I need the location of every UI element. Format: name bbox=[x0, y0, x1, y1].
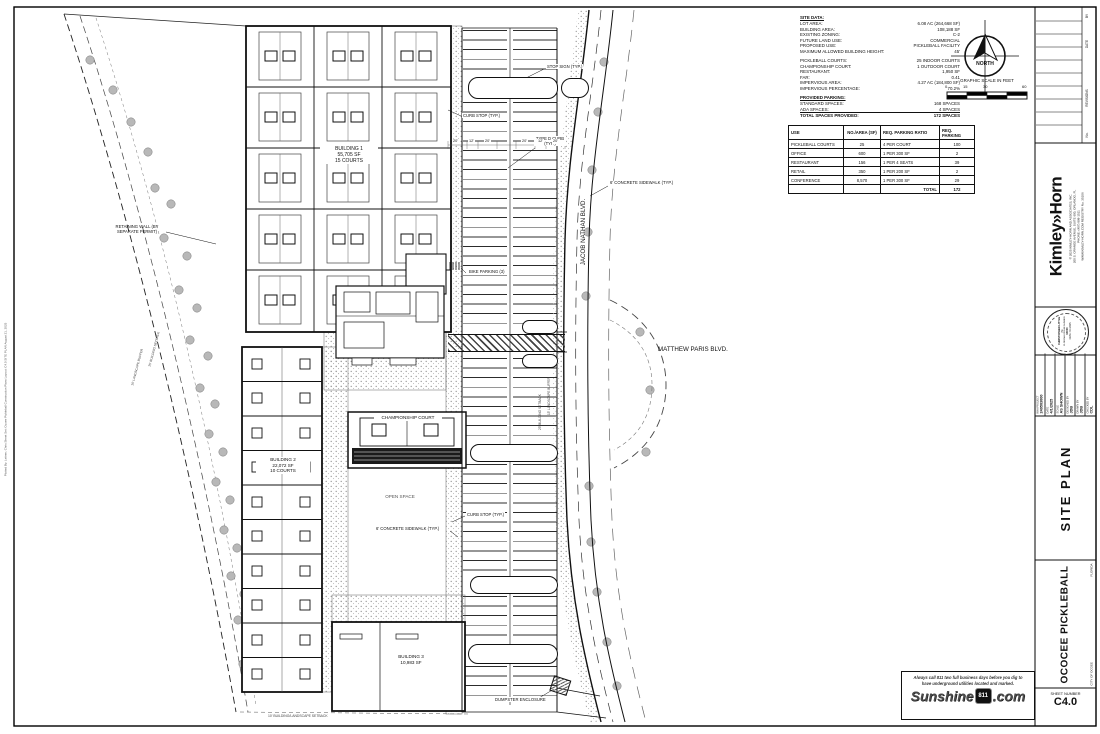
site-data-row: TOTAL SPACES PROVIDED:172 SPACES bbox=[800, 112, 960, 119]
retaining-wall-label: RETAINING WALL (BY SEPARATE PERMIT) bbox=[108, 224, 166, 234]
table-total-row: TOTAL172 bbox=[789, 184, 974, 193]
table-row: RETAIL350 1 PER 200 SF2 bbox=[789, 166, 974, 175]
building-setback-25-east-label: 25' BUILDING SETBACK bbox=[539, 382, 547, 442]
parking-stalls-east bbox=[513, 30, 557, 76]
parking-stalls-west bbox=[463, 596, 507, 642]
landscape-island bbox=[470, 444, 558, 462]
project-info-field: SCALEAS SHOWN bbox=[1056, 354, 1066, 416]
site-data-block: SITE DATA: LOT AREA:6.08 AC (264,668 SF)… bbox=[800, 15, 960, 119]
project-info-field: KHA PROJECT249503000 bbox=[1036, 354, 1046, 416]
bleachers bbox=[352, 448, 462, 464]
building-1-outline bbox=[246, 26, 451, 332]
pe-seal-text: CHRISTOPHER LITTLE PE FLORIDA LICENSE NU… bbox=[1043, 309, 1087, 353]
parking-dim: 20' bbox=[552, 139, 559, 144]
jacob-nathan-blvd-road bbox=[558, 10, 646, 722]
landscape-island bbox=[522, 320, 558, 334]
scale-tick: 60 bbox=[1022, 85, 1026, 90]
project-info-field: DATE4/1/2025 bbox=[1046, 354, 1056, 416]
championship-court-label: CHAMPIONSHIP COURT bbox=[374, 415, 442, 421]
building-1-label: BUILDING 1 55,705 SF 15 COURTS bbox=[320, 146, 378, 164]
sunshine-notice-line: have underground utilities located and m… bbox=[902, 681, 1034, 687]
north-label: NORTH bbox=[969, 61, 1001, 67]
kimley-horn-block: Kimley»Horn © 2025 KIMLEY-HORN AND ASSOC… bbox=[1036, 146, 1095, 308]
sheet-number-box: SHEET NUMBER C4.0 bbox=[1036, 689, 1095, 726]
parking-dim: 20' bbox=[521, 139, 528, 144]
parking-dim: 12' bbox=[468, 139, 475, 144]
parking-requirements-table: USE NO./AREA (SF) REQ. PARKING RATIO REQ… bbox=[788, 125, 975, 194]
bike-parking-label: BIKE PARKING (3) bbox=[468, 269, 506, 274]
crosswalk bbox=[448, 334, 565, 352]
driveway-lines bbox=[557, 332, 606, 718]
parking-stalls-east bbox=[513, 666, 557, 698]
building-2-courts bbox=[252, 359, 310, 679]
parking-stalls-west bbox=[463, 102, 507, 328]
graphic-scale-title: GRAPHIC SCALE IN FEET bbox=[947, 78, 1027, 83]
landscape-island bbox=[561, 78, 589, 98]
table-row: CONFERENCE8,570 1 PER 300 SF29 bbox=[789, 175, 974, 184]
project-name: OCOCEE PICKLEBALL bbox=[1060, 566, 1071, 684]
parking-stalls-west bbox=[463, 666, 507, 698]
curb-stop-mid-label: CURB STOP (TYP.) bbox=[466, 512, 505, 517]
revisions-no-header: No. bbox=[1085, 115, 1093, 155]
city-label: CITY OF OCOEE bbox=[1090, 662, 1094, 685]
sheet-title: SITE PLAN bbox=[1036, 417, 1095, 560]
parking-stalls-west bbox=[463, 358, 507, 442]
table-row: PICKLEBALL COURTS25 4 PER COURT100 bbox=[789, 139, 974, 148]
revisions-header: REVISIONS bbox=[1085, 78, 1093, 118]
parking-dim: 20' bbox=[452, 139, 459, 144]
bike-rack-symbol bbox=[450, 262, 459, 270]
project-name-block: OCOCEE PICKLEBALL CITY OF OCOEE FLORIDA bbox=[1036, 562, 1095, 688]
landscape-island bbox=[468, 644, 558, 664]
building-3-label: BUILDING 3 10,983 SF bbox=[384, 654, 438, 665]
jacob-nathan-blvd-label: JACOB NATHAN BLVD. bbox=[580, 192, 590, 272]
concrete-sidewalk-mid-label: 6' CONCRETE SIDEWALK (TYP.) bbox=[376, 526, 439, 531]
seal-date: DATE: 4/1/2025 bbox=[1069, 323, 1072, 340]
landscape-island bbox=[470, 576, 558, 594]
sheet-number: C4.0 bbox=[1036, 696, 1095, 708]
building-2-label: BUILDING 2 22,072 SF 10 COURTS bbox=[256, 457, 310, 474]
setback-bottom-label: 10' BUILDING/LANDSCAPE SETBACK bbox=[268, 714, 328, 718]
parking-stalls-east bbox=[513, 596, 557, 642]
revisions-date-header: DATE bbox=[1085, 24, 1093, 64]
scale-tick: 15 bbox=[963, 85, 967, 90]
parking-stalls-west bbox=[463, 464, 507, 574]
scale-tick: 30 bbox=[983, 85, 987, 90]
sidewalk-stipple bbox=[322, 26, 465, 714]
curb-stop-label: CURB STOP (TYP.) bbox=[462, 113, 501, 118]
dumpster-enclosure-label: DUMPSTER ENCLOSURE bbox=[494, 697, 547, 702]
sunshine-811-logo: Sunshine811.com bbox=[902, 688, 1034, 704]
stop-sign-label: STOP SIGN (TYP.) bbox=[546, 64, 583, 69]
parking-dim: 20' bbox=[484, 139, 491, 144]
scale-tick: 0 bbox=[945, 85, 947, 90]
project-info-field: DRAWN BYJDB bbox=[1076, 354, 1086, 416]
project-info-field: CHECKED BYCDL bbox=[1086, 354, 1095, 416]
building-3-outline bbox=[332, 622, 465, 711]
sunshine-notice-line: Always call 811 two full business days b… bbox=[902, 675, 1034, 681]
firm-web: WWW.KIMLEY-HORN.COM REGISTRY No. 35106 bbox=[1080, 192, 1084, 260]
road-sidewalk-stipple bbox=[558, 10, 595, 722]
table-row: RESTAURANT156 1 PER 4 SEATS39 bbox=[789, 157, 974, 166]
landscape-buffer-15-label: 15' LANDSCAPE BUFFER bbox=[548, 366, 556, 426]
parking-stalls-east bbox=[513, 464, 557, 574]
building-2-outline bbox=[242, 347, 322, 692]
concrete-sidewalk-label: 6' CONCRETE SIDEWALK (TYP.) bbox=[610, 180, 673, 185]
parking-dim: 12' bbox=[537, 139, 544, 144]
property-boundary bbox=[64, 14, 468, 714]
open-space-label: OPEN SPACE bbox=[380, 494, 420, 500]
project-info-block: KHA PROJECT249503000 DATE4/1/2025 SCALEA… bbox=[1036, 356, 1095, 416]
roundabout-arcs bbox=[610, 300, 666, 468]
kimley-horn-logo: Kimley»Horn bbox=[1046, 177, 1066, 276]
811-shield-icon: 811 bbox=[975, 688, 992, 704]
parking-stalls-west bbox=[463, 30, 507, 76]
table-header-row: USE NO./AREA (SF) REQ. PARKING RATIO REQ… bbox=[789, 126, 974, 139]
table-row: OFFICE600 1 PER 300 SF2 bbox=[789, 148, 974, 157]
matthew-paris-blvd-label: MATTHEW PARIS BLVD. bbox=[658, 346, 728, 353]
landscape-island bbox=[468, 77, 558, 99]
state-label: FLORIDA bbox=[1090, 564, 1094, 577]
sunshine-811-notice: Always call 811 two full business days b… bbox=[901, 671, 1035, 720]
plot-info: Plotted By: Leitner, Chris Sheet Set: Oc… bbox=[4, 125, 13, 675]
project-info-field: DESIGNED BYJDB bbox=[1066, 354, 1076, 416]
lobby-building bbox=[336, 254, 446, 365]
building-1-courts bbox=[259, 32, 437, 324]
plan-sheet: BUILDING 1 55,705 SF 15 COURTS BUILDING … bbox=[0, 0, 1100, 734]
